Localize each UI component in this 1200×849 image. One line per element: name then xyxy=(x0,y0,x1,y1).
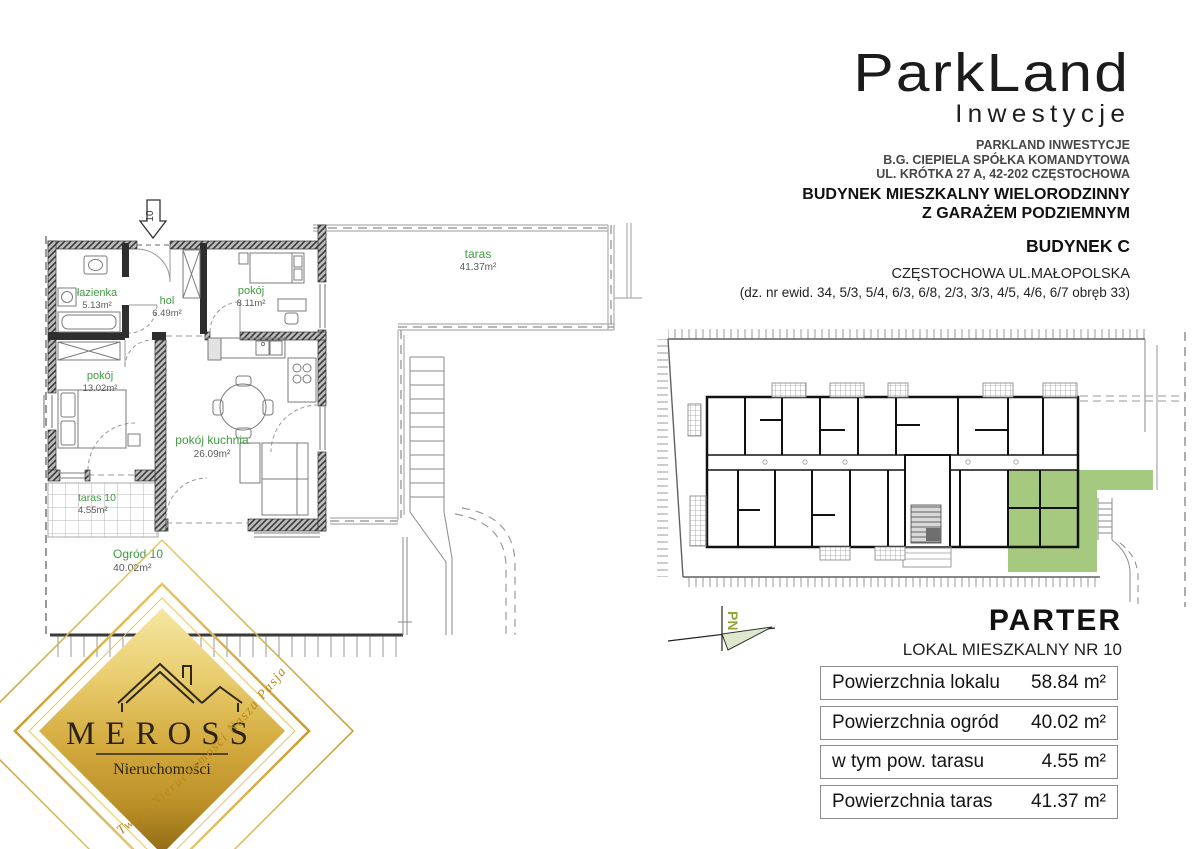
room-area-taras: 41.37m² xyxy=(460,262,497,273)
company-line: B.G. CIEPIELA SPÓŁKA KOMANDYTOWA xyxy=(876,153,1130,168)
area-label: Powierzchnia ogród xyxy=(832,712,999,734)
room-area-ogrod: 40.02m² xyxy=(113,562,152,574)
unit-floor-label: PARTER xyxy=(903,606,1122,636)
area-row-taras-w-tym: w tym pow. tarasu 4.55 m² xyxy=(820,745,1118,779)
highlighted-unit-10 xyxy=(1008,470,1153,572)
room-label-taras10: taras 10 xyxy=(78,492,116,504)
unit-heading: PARTER LOKAL MIESZKALNY NR 10 xyxy=(903,606,1122,659)
room-label-ogrod: Ogród 10 xyxy=(113,547,163,561)
agency-logo: MEROSS Nieruchomości Twoje Nieruchomości… xyxy=(0,540,353,849)
room-label-lazienka: łazienka xyxy=(77,287,118,299)
room-label-kuchnia: pokój kuchnia xyxy=(175,433,249,447)
room-label-pokoj-8: pokój xyxy=(238,285,264,297)
area-value: 58.84 m² xyxy=(1031,672,1106,694)
area-value: 4.55 m² xyxy=(1042,751,1106,773)
brand-logo-subtext: Inwestycje xyxy=(870,101,1130,127)
room-area-hol: 6.49m² xyxy=(152,308,182,319)
brochure-page: 10 xyxy=(0,0,1200,849)
project-location: CZĘSTOCHOWA UL.MAŁOPOLSKA xyxy=(740,266,1130,282)
area-table: Powierzchnia lokalu 58.84 m² Powierzchni… xyxy=(820,666,1118,824)
company-line: PARKLAND INWESTYCJE xyxy=(876,138,1130,153)
company-address: PARKLAND INWESTYCJE B.G. CIEPIELA SPÓŁKA… xyxy=(876,138,1130,182)
project-plots: (dz. nr ewid. 34, 5/3, 5/4, 6/3, 6/8, 2/… xyxy=(740,285,1130,300)
project-building: BUDYNEK C xyxy=(740,236,1130,257)
room-area-lazienka: 5.13m² xyxy=(82,300,112,311)
room-label-hol: hol xyxy=(160,295,175,307)
brand-logo-text: ParkLand xyxy=(853,48,1130,98)
building-overview-plan xyxy=(657,329,1185,607)
brand-block: ParkLand Inwestycje xyxy=(883,48,1130,127)
area-row-ogrod: Powierzchnia ogród 40.02 m² xyxy=(820,706,1118,740)
area-label: Powierzchnia lokalu xyxy=(832,672,1000,694)
area-value: 40.02 m² xyxy=(1031,712,1106,734)
unit-floorplan: 10 xyxy=(44,200,642,657)
area-label: Powierzchnia taras xyxy=(832,791,993,813)
company-line: UL. KRÓTKA 27 A, 42-202 CZĘSTOCHOWA xyxy=(876,167,1130,182)
area-row-taras: Powierzchnia taras 41.37 m² xyxy=(820,785,1118,819)
project-title-line1: BUDYNEK MIESZKALNY WIELORODZINNY xyxy=(740,185,1130,204)
room-label-pokoj-13: pokój xyxy=(87,370,113,382)
room-area-taras10: 4.55m² xyxy=(78,505,108,516)
entrance-number: 10 xyxy=(145,210,156,222)
room-area-pokoj-13: 13.02m² xyxy=(83,383,118,394)
area-value: 41.37 m² xyxy=(1031,791,1106,813)
room-label-taras: taras xyxy=(465,247,492,261)
exterior-stair xyxy=(410,357,452,635)
project-title-line2: Z GARAŻEM PODZIEMNYM xyxy=(740,204,1130,223)
room-area-kuchnia: 26.09m² xyxy=(194,449,231,460)
project-info: BUDYNEK MIESZKALNY WIELORODZINNY Z GARAŻ… xyxy=(740,185,1130,300)
unit-name-label: LOKAL MIESZKALNY NR 10 xyxy=(903,641,1122,659)
north-label: PN xyxy=(725,611,741,630)
area-label: w tym pow. tarasu xyxy=(832,751,984,773)
area-row-lokal: Powierzchnia lokalu 58.84 m² xyxy=(820,666,1118,700)
room-area-pokoj-8: 8.11m² xyxy=(237,298,266,309)
north-arrow-icon: PN xyxy=(668,606,775,651)
